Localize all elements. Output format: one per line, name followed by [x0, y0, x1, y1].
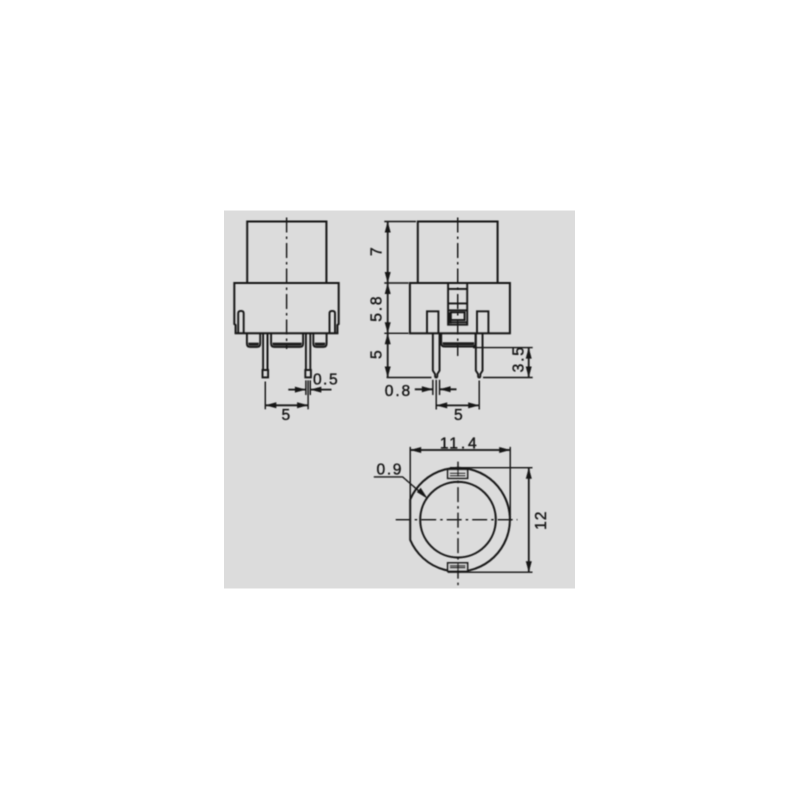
svg-text:5: 5 [329, 371, 338, 388]
svg-text:4: 4 [468, 435, 477, 452]
svg-text:3: 3 [511, 364, 528, 373]
svg-text:0: 0 [377, 461, 386, 478]
svg-text:5: 5 [368, 313, 385, 322]
svg-text:.: . [323, 371, 327, 388]
svg-text:.: . [395, 383, 399, 400]
svg-text:5: 5 [368, 350, 385, 359]
svg-text:8: 8 [368, 296, 385, 305]
svg-text:5: 5 [454, 407, 463, 424]
svg-text:.: . [368, 307, 385, 311]
svg-text:.: . [387, 461, 391, 478]
svg-text:1: 1 [440, 435, 449, 452]
svg-text:1: 1 [533, 521, 550, 530]
svg-text:2: 2 [533, 512, 550, 521]
svg-text:7: 7 [368, 247, 385, 256]
svg-text:.: . [461, 435, 465, 452]
svg-text:1: 1 [449, 435, 458, 452]
svg-text:5: 5 [511, 347, 528, 356]
svg-text:8: 8 [402, 383, 411, 400]
svg-text:9: 9 [393, 461, 402, 478]
svg-text:0: 0 [385, 383, 394, 400]
svg-text:.: . [511, 358, 528, 362]
svg-text:5: 5 [282, 407, 291, 424]
svg-text:0: 0 [313, 371, 322, 388]
